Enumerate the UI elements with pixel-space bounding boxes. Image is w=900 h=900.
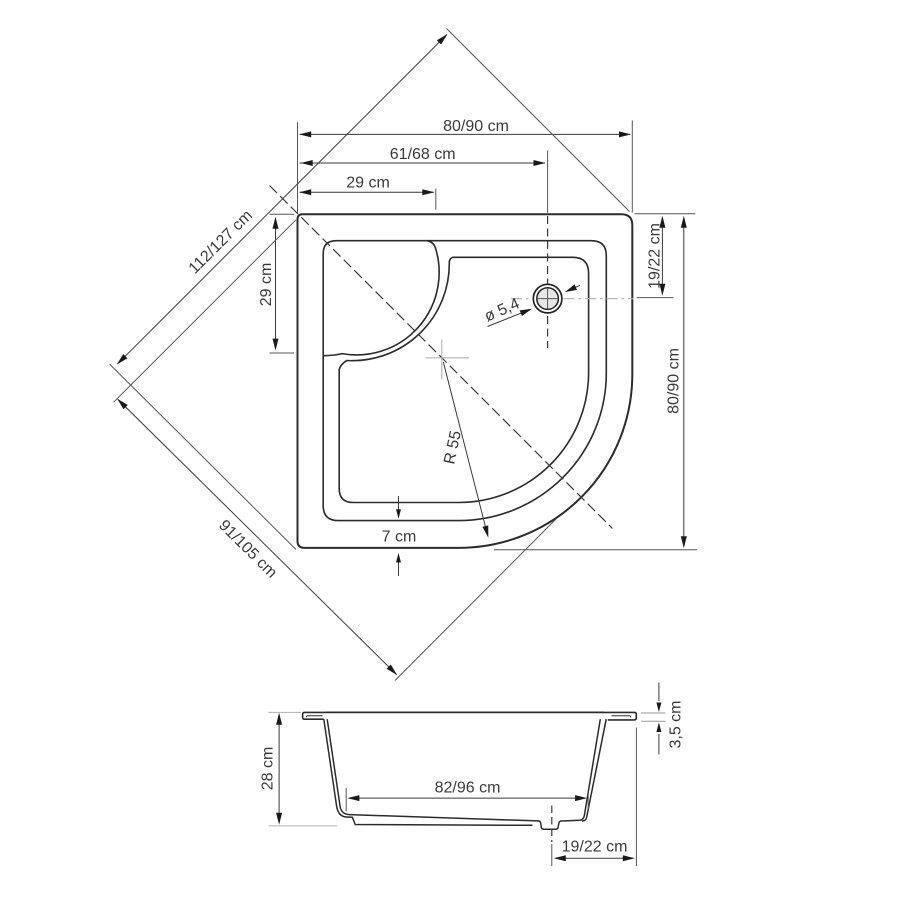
svg-text:19/22 cm: 19/22 cm [647, 223, 664, 289]
svg-text:80/90 cm: 80/90 cm [666, 348, 683, 414]
svg-text:3,5 cm: 3,5 cm [668, 700, 685, 748]
svg-text:7 cm: 7 cm [382, 529, 417, 546]
svg-text:19/22 cm: 19/22 cm [562, 839, 628, 856]
svg-text:29 cm: 29 cm [258, 263, 275, 307]
svg-text:29 cm: 29 cm [346, 175, 390, 192]
svg-text:82/96 cm: 82/96 cm [435, 779, 501, 796]
svg-text:80/90 cm: 80/90 cm [443, 118, 509, 135]
svg-text:28 cm: 28 cm [260, 747, 277, 791]
svg-text:61/68 cm: 61/68 cm [390, 146, 456, 163]
